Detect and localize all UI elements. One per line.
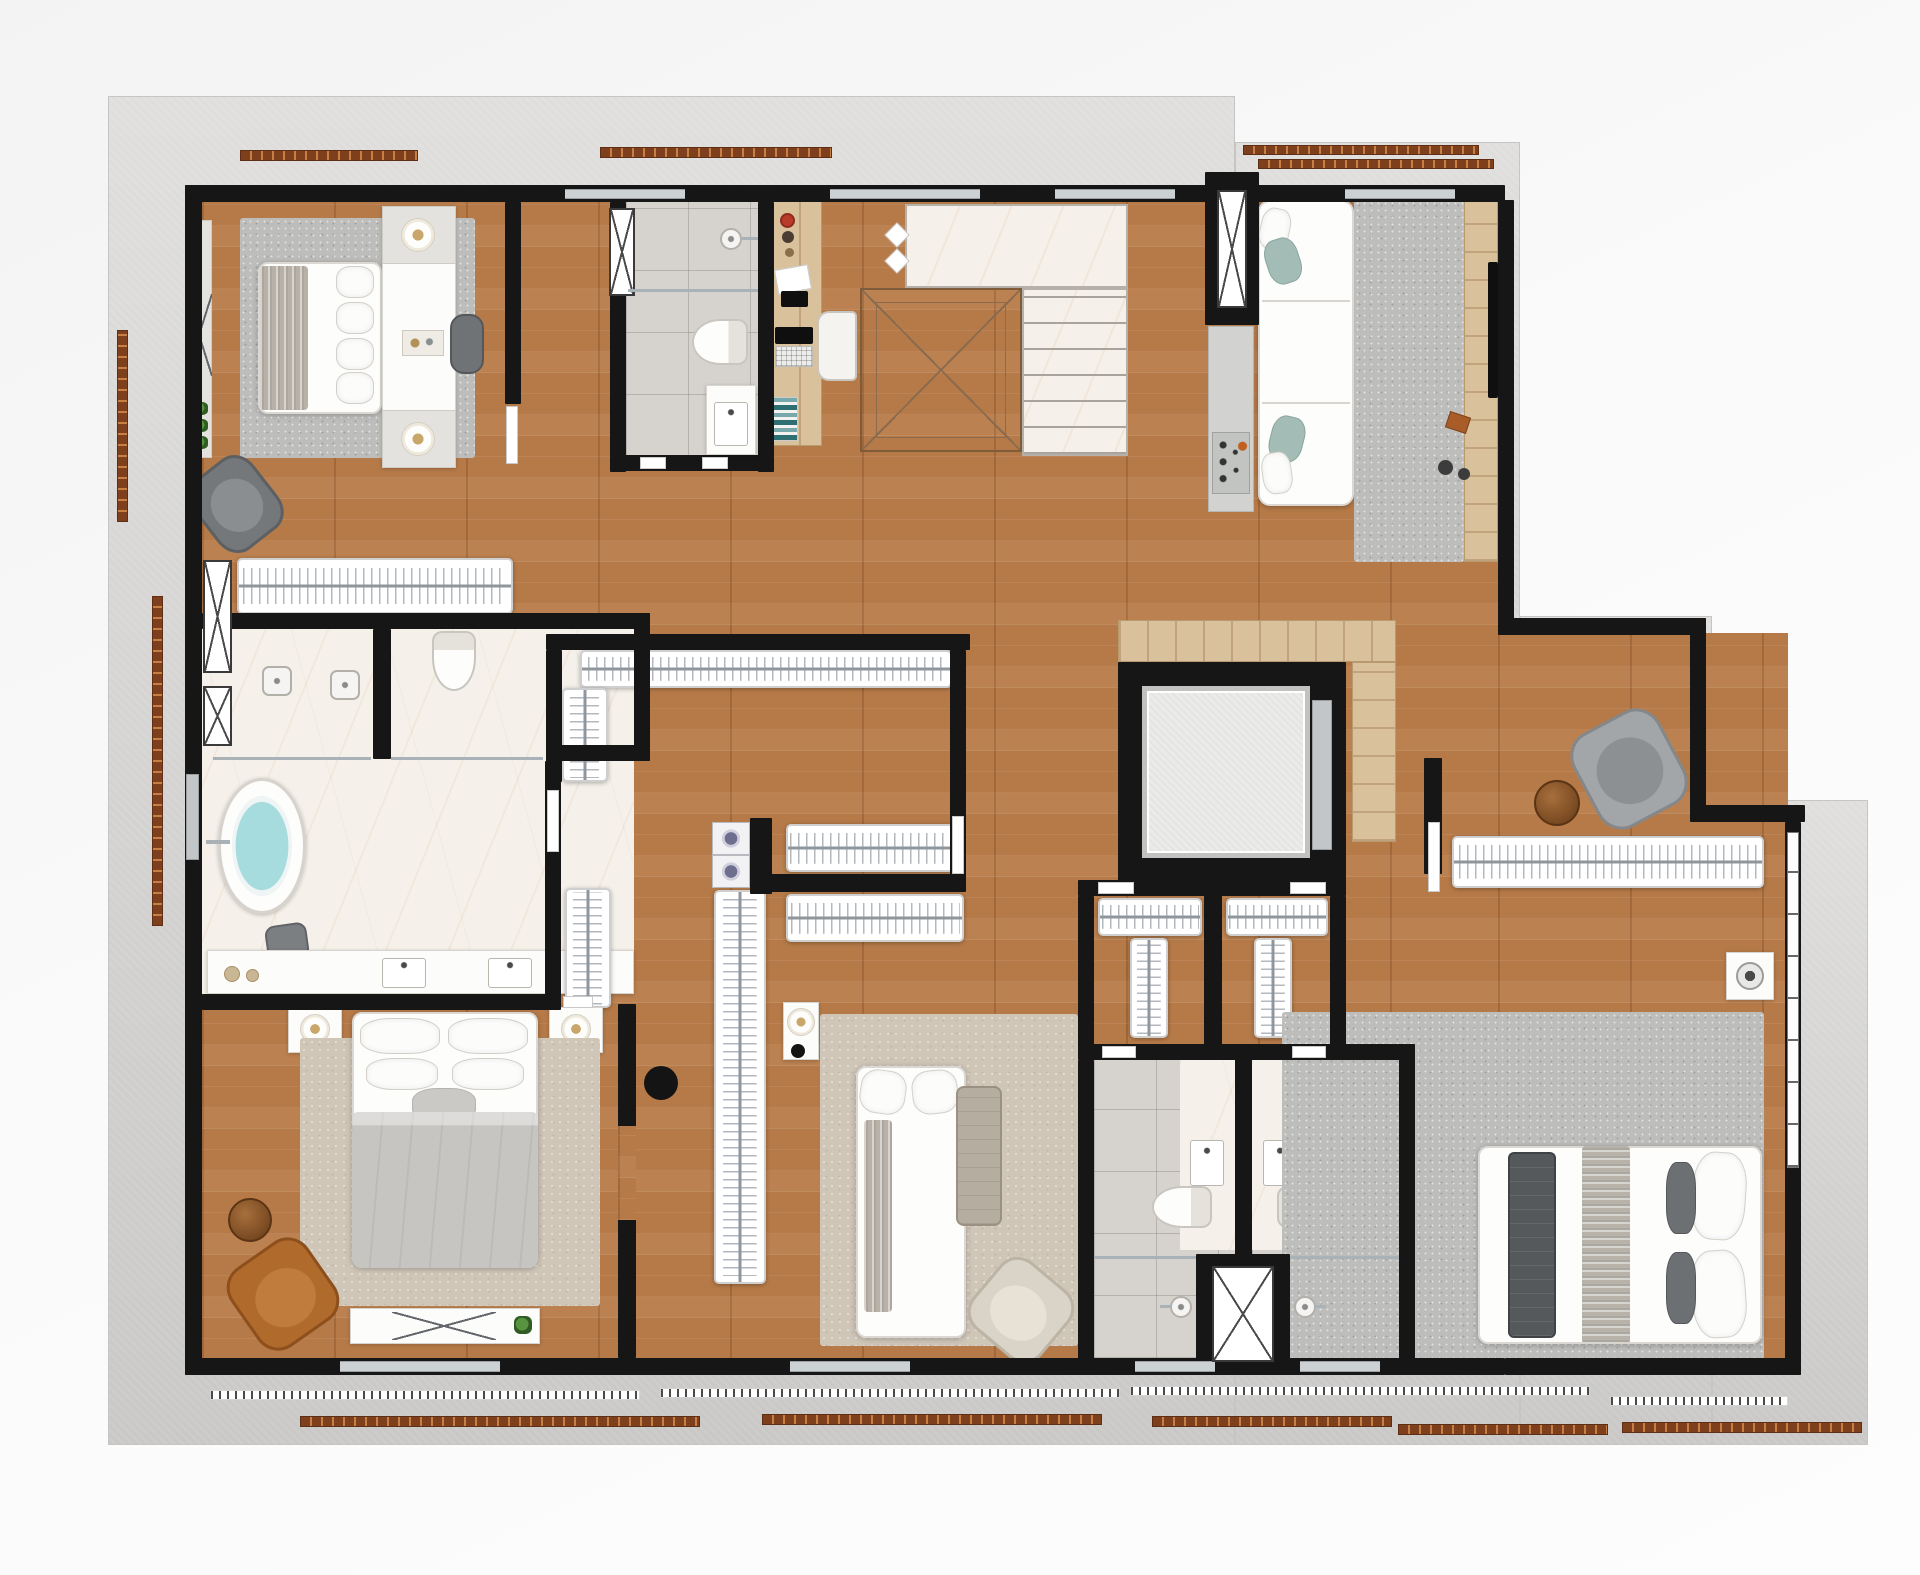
- balcony-grill-4: [1610, 1396, 1788, 1406]
- window-top-2: [830, 189, 980, 199]
- shaft-left-1: [203, 560, 232, 673]
- void-inner: [876, 302, 1006, 438]
- b3-glass: [1290, 1256, 1399, 1259]
- brise-bottom-4: [1398, 1424, 1608, 1435]
- mb-door: [547, 790, 559, 852]
- b2-toilet: [1152, 1186, 1212, 1228]
- elevator-door: [1312, 700, 1332, 850]
- tv-living: [1488, 262, 1498, 398]
- wall-baths-left: [1078, 1060, 1094, 1375]
- floor-plan: KYLIE: [0, 0, 1920, 1575]
- walkin-door-a: [1098, 882, 1134, 894]
- closet-rack-b2: [562, 688, 608, 782]
- wing-cushion-1: [1666, 1162, 1696, 1234]
- washer: [712, 822, 750, 855]
- mb-glass-1: [213, 757, 371, 760]
- bath3-door: [1292, 1046, 1326, 1058]
- brise-top-3: [1243, 145, 1479, 155]
- wing-rack: [1452, 836, 1764, 888]
- balcony-grill-2: [660, 1388, 1120, 1398]
- stair-landing: [905, 204, 1128, 288]
- brise-bottom-3: [1152, 1416, 1392, 1427]
- window-top-1: [565, 189, 685, 199]
- wing-pillow-2: [1689, 1248, 1749, 1340]
- mb-door-gap: [563, 996, 593, 1008]
- wing-fan-clock: [1736, 962, 1764, 990]
- wall-mb-divider: [373, 629, 391, 759]
- mb-tray-1: [224, 966, 240, 982]
- suite1-pillow-3: [336, 338, 374, 370]
- walkin-rack-a1: [1098, 898, 1202, 936]
- closet-rack-c: [714, 890, 766, 1284]
- wall-bottom-wing: [1505, 1358, 1801, 1375]
- closetB-door: [952, 816, 964, 874]
- wall-closetB-top: [546, 634, 970, 650]
- b3-shower: [1294, 1296, 1316, 1318]
- tub-faucet: [206, 840, 230, 844]
- wall-mb-bump: [560, 745, 650, 761]
- wall-baths-right: [1399, 1044, 1415, 1375]
- decor-circle-2: [1458, 468, 1470, 480]
- shower-head-1: [262, 666, 292, 696]
- window-bottom-1: [340, 1361, 500, 1372]
- winbox-glass: [1217, 190, 1247, 308]
- bath1-shower: [720, 228, 742, 250]
- bed2-lamp: [787, 1008, 815, 1036]
- bath1-toilet: [692, 319, 748, 365]
- wall-bath1-right: [758, 202, 774, 472]
- shaft-left-2: [203, 686, 232, 746]
- mb-sink-left: [382, 958, 426, 988]
- bed2-vase: [791, 1044, 805, 1058]
- brise-bottom-2: [762, 1414, 1102, 1425]
- office-books: [771, 397, 798, 441]
- window-top-3: [1055, 189, 1175, 199]
- wall-walkin-left: [1078, 896, 1094, 1052]
- bath2-door: [1102, 1046, 1136, 1058]
- wing-bed-drape: [1582, 1146, 1630, 1344]
- elev-hall-band-v: [1352, 662, 1396, 842]
- master-bench-plant: [514, 1316, 532, 1334]
- suite1-door: [506, 406, 518, 464]
- wall-right-living: [1498, 200, 1514, 635]
- master-pillow-1: [360, 1018, 440, 1054]
- brise-top-2: [600, 147, 832, 158]
- bed2-bench: [956, 1086, 1002, 1226]
- suite1-desk-tray: [402, 330, 444, 356]
- tub: [218, 778, 306, 914]
- wall-walkin-div: [1204, 880, 1222, 1052]
- wall-closetB-left: [546, 650, 562, 782]
- bath1-glass: [628, 289, 758, 292]
- mb-glass-2: [391, 757, 543, 760]
- suite1-pillow-1: [336, 266, 374, 298]
- shaft-x: [1212, 1266, 1274, 1362]
- brise-left-2: [152, 596, 163, 926]
- master-bench-x: [392, 1312, 496, 1340]
- wall-bath1-bottom: [610, 455, 774, 471]
- closet-rack-d: [786, 824, 954, 872]
- master-duvet: [352, 1112, 538, 1268]
- bath1-shower-arm: [742, 237, 758, 240]
- wall-baths-div: [1235, 1044, 1252, 1258]
- wing-cushion-2: [1666, 1252, 1696, 1324]
- window-bottom-3: [1135, 1361, 1215, 1372]
- walkin-rack-b1: [1226, 898, 1328, 936]
- wing-door: [1428, 822, 1440, 892]
- sofa-seam-1: [1262, 300, 1350, 302]
- walkin-door-b: [1290, 882, 1326, 894]
- window-bottom-2: [790, 1361, 910, 1372]
- office-pot-tan: [785, 248, 794, 257]
- suite1-pillow-2: [336, 302, 374, 334]
- bath1-door-1: [640, 457, 666, 469]
- wall-laundry-stub: [750, 818, 772, 894]
- brise-bottom-5: [1622, 1422, 1862, 1433]
- master-side-table: [228, 1198, 272, 1242]
- window-bottom-4: [1300, 1361, 1380, 1372]
- b2-glass: [1094, 1256, 1196, 1259]
- living-knob-panel: [1212, 432, 1250, 494]
- brise-left-1: [117, 330, 128, 522]
- wall-mb-top: [202, 613, 650, 629]
- brise-bottom-1: [300, 1416, 700, 1427]
- wall-wing-top: [1498, 618, 1706, 635]
- bath1-sink: [714, 402, 748, 446]
- mb-sink-right: [488, 958, 532, 988]
- decor-circle-1: [1438, 460, 1453, 475]
- dryer: [712, 855, 750, 888]
- bedroom2-gap: [618, 1126, 636, 1220]
- hall-rack-long: [237, 558, 513, 614]
- wall-wing-vert: [1690, 618, 1706, 818]
- office-keyboard: [775, 346, 813, 367]
- elev-hall-band-h: [1118, 620, 1396, 662]
- walkin-rack-a2: [1130, 938, 1168, 1038]
- balcony-grill-1: [210, 1390, 640, 1400]
- master-pillow-3: [366, 1058, 438, 1090]
- brise-top-4: [1258, 159, 1494, 169]
- b2-sink: [1190, 1140, 1224, 1186]
- office-chair: [817, 311, 857, 381]
- wall-walkin-right: [1330, 896, 1346, 1052]
- suite1-lamp-b: [401, 422, 435, 456]
- wall-closetD: [770, 874, 966, 892]
- bed2-drape: [864, 1120, 892, 1312]
- wall-mb-bottom: [202, 994, 561, 1010]
- master-pillow-2: [448, 1018, 528, 1054]
- b2-shower-arm: [1160, 1305, 1172, 1308]
- wall-suite1: [505, 202, 521, 404]
- mb-tray-2: [246, 969, 259, 982]
- wing-side-table: [1534, 780, 1580, 826]
- staircase: [1022, 288, 1128, 456]
- shower-head-2: [330, 670, 360, 700]
- closet-rack-e: [786, 894, 964, 942]
- office-pot-red: [780, 213, 795, 228]
- office-pot-dark: [782, 231, 794, 243]
- bath1-shaft: [609, 208, 635, 296]
- living-rug: [1354, 200, 1464, 562]
- office-tablet: [781, 291, 808, 307]
- hall-stool-black: [644, 1066, 678, 1100]
- wing-bed-bench: [1508, 1152, 1556, 1338]
- balcony-grill-3: [1130, 1386, 1590, 1396]
- balcony-door-left: [186, 774, 199, 860]
- bed2-pillow-2: [910, 1068, 960, 1117]
- brise-top-1: [240, 150, 418, 161]
- b2-shower: [1170, 1296, 1192, 1318]
- elevator-cab: [1142, 686, 1310, 858]
- b3-shower-arm: [1314, 1305, 1326, 1308]
- window-top-4: [1345, 189, 1455, 199]
- wall-wing-top2: [1690, 805, 1805, 822]
- wing-window: [1787, 832, 1799, 1168]
- master-pillow-4: [452, 1058, 524, 1090]
- suite1-bed-drape: [260, 266, 308, 410]
- suite1-lamp-a: [401, 218, 435, 252]
- sofa-seam-2: [1262, 402, 1350, 404]
- office-laptop-screen: [775, 327, 813, 344]
- suite1-desk-chair: [450, 314, 484, 374]
- master-rack: [565, 888, 611, 1008]
- bath1-door-2: [702, 457, 728, 469]
- suite1-pillow-4: [336, 372, 374, 404]
